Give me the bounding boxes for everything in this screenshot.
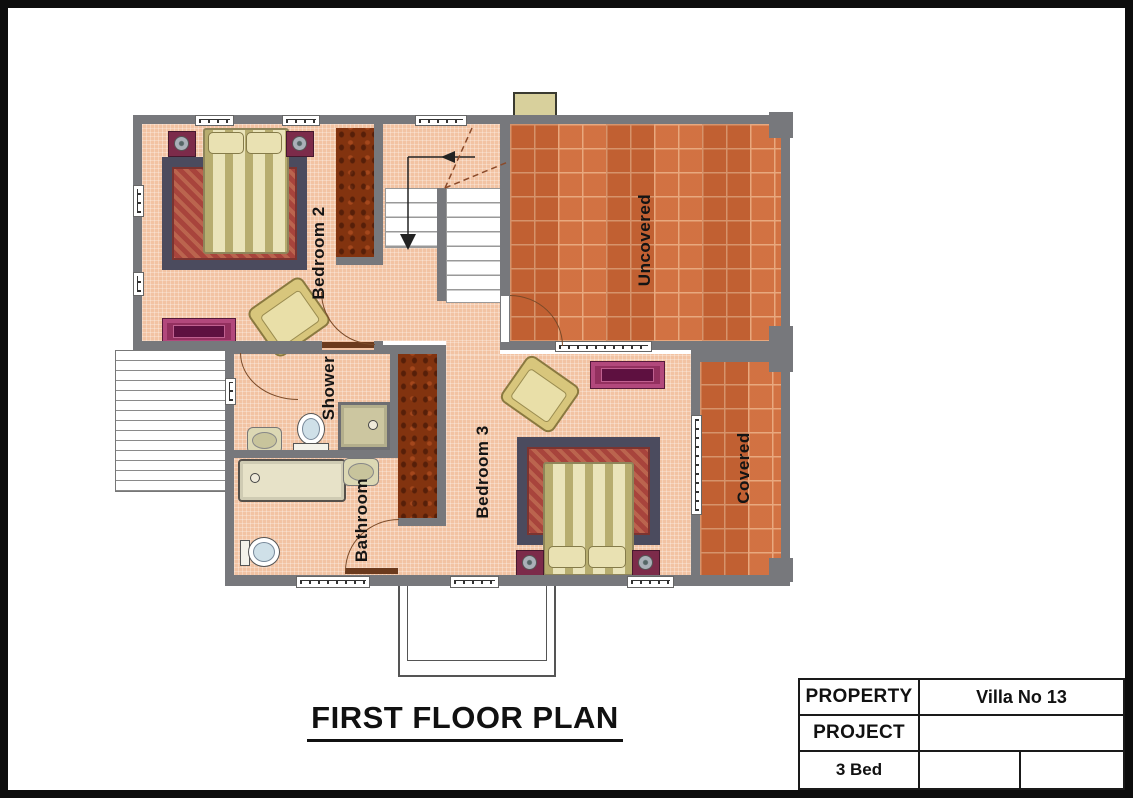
corner-pillar [769,112,793,138]
drain-icon [368,420,378,430]
door-opening [501,296,509,342]
lamp-icon [638,555,653,570]
shower-label: Shower [319,356,339,420]
wall [398,518,446,526]
wall [234,450,398,458]
balcony-inner-line [407,586,547,661]
title-block-row-project: PROJECT [800,716,1123,752]
pillow-icon [246,132,282,154]
project-label: PROJECT [800,716,920,750]
nightstand-icon [632,550,660,576]
pillow-icon [588,546,626,568]
pillow-icon [208,132,244,154]
window [133,272,144,296]
property-label: PROPERTY [800,680,920,714]
wall [390,345,398,458]
property-value: Villa No 13 [920,680,1123,714]
wall [781,115,790,350]
sliding-door [691,415,702,515]
uncovered-label: Uncovered [635,194,655,286]
stair-direction-arrow [383,124,509,260]
wardrobe-bedroom2 [336,128,374,257]
title-block: PROPERTY Villa No 13 PROJECT 3 Bed [798,678,1125,790]
nightstand-icon [516,550,544,576]
title-block-row-property: PROPERTY Villa No 13 [800,680,1123,716]
title-block-row-beds: 3 Bed [800,752,1123,788]
bathroom-label: Bathroom [352,478,372,562]
plan-title: FIRST FLOOR PLAN [285,700,645,742]
lamp-icon [174,136,189,151]
lamp-icon [522,555,537,570]
wall [500,115,790,124]
window [225,378,236,405]
wall [437,345,446,526]
wall [133,115,142,350]
nightstand-icon [286,131,314,157]
bedroom2-label: Bedroom 2 [309,206,329,299]
window [450,576,499,588]
corner-pillar [769,558,793,582]
toilet-icon [248,537,280,567]
window [555,341,652,352]
wall [336,257,383,265]
covered-label: Covered [734,432,754,504]
drain-icon [250,473,260,483]
wall [374,115,383,265]
balcony-outline [398,586,556,677]
pillow-icon [548,546,586,568]
shower-tray-icon [338,402,390,450]
window [195,115,234,126]
exterior-stairs [115,350,234,492]
bedroom3-label: Bedroom 3 [473,425,493,518]
window [296,576,370,588]
floor-plan-sheet: Bedroom 2 Shower Bathroom Bedroom 3 Unco… [0,0,1133,798]
lamp-icon [292,136,307,151]
corner-pillar [769,326,793,350]
nightstand-icon [168,131,196,157]
plan-title-text: FIRST FLOOR PLAN [307,700,623,742]
beds-value-1 [920,752,1021,788]
wall [781,350,790,585]
hall-passage-floor [446,341,500,355]
corner-pillar [769,350,793,372]
beds-value-2 [1021,752,1123,788]
dresser-icon [590,361,665,389]
window [627,576,674,588]
window [282,115,320,126]
window [133,185,144,217]
beds-label: 3 Bed [800,752,920,788]
wardrobe-bedroom3 [398,354,437,518]
project-value [920,716,1123,750]
